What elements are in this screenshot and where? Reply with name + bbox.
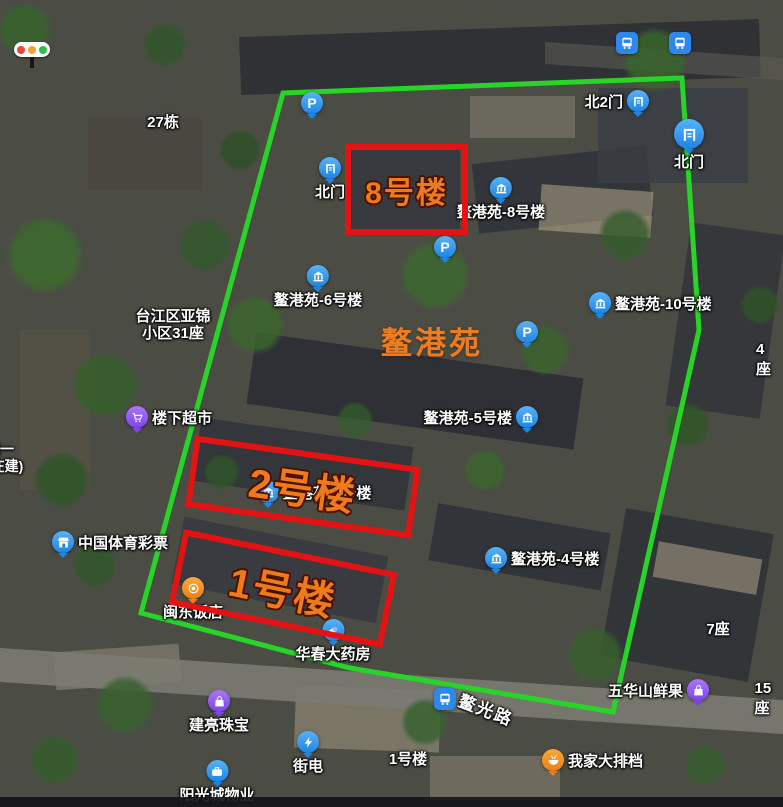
power-bank-icon (297, 731, 319, 753)
gate-icon (319, 157, 341, 179)
compound-name-label: 鳌港苑 (381, 318, 483, 363)
poi-building-8[interactable]: 鳌港苑-8号楼 (457, 177, 545, 222)
bus-stop-icon (616, 32, 638, 54)
parking-marker[interactable]: P (434, 236, 456, 258)
traffic-light-icon (14, 42, 50, 68)
highlight-box-label: 8号楼 (365, 168, 448, 212)
building-icon (490, 177, 512, 199)
building-icon (307, 265, 329, 287)
gate-icon (674, 119, 704, 149)
window-bottom-edge (0, 797, 783, 807)
poi-label: 鳌港苑-8号楼 (457, 201, 545, 222)
parking-marker[interactable]: P (301, 92, 323, 114)
parking-icon: P (301, 92, 323, 114)
poi-label: 中国体育彩票 (78, 532, 168, 553)
poi-label: 北2门 (585, 91, 623, 112)
highlight-box-label: 1号楼 (224, 549, 342, 627)
poi-fruit-shop[interactable]: 五华山鲜果 (608, 679, 709, 701)
map-label-line1: 台江区亚锦 (135, 308, 210, 325)
poi-label: 五华山鲜果 (608, 680, 683, 701)
building-icon (516, 406, 538, 428)
poi-label: 北门 (315, 181, 345, 202)
parking-icon: P (434, 236, 456, 258)
poi-north-gate-west[interactable]: 北门 (315, 157, 345, 202)
poi-lottery-store[interactable]: 中国体育彩票 (52, 531, 168, 553)
poi-label: 华春大药房 (295, 643, 370, 664)
map-label-line1: 线一 (0, 441, 23, 458)
lottery-store-icon (52, 531, 74, 553)
food-stall-icon (542, 749, 564, 771)
satellite-map[interactable]: 8号楼 2号楼 1号楼 鳌港苑 北2门 北门 P 北门 鳌港苑-8号楼 P (0, 0, 783, 807)
poi-label: 楼下超市 (152, 407, 212, 428)
building-icon (485, 547, 507, 569)
highlight-box-label: 2号楼 (245, 451, 360, 524)
map-label-block4: 4座 (756, 341, 774, 379)
parking-marker[interactable]: P (516, 321, 538, 343)
building-icon (589, 292, 611, 314)
map-label-block15: 15座 (755, 680, 774, 718)
poi-label: 鳌港苑-6号楼 (274, 289, 362, 310)
poi-building-5[interactable]: 鳌港苑-5号楼 (424, 406, 538, 428)
poi-label: 鳌港苑-10号楼 (615, 293, 712, 314)
parking-icon: P (516, 321, 538, 343)
map-label-under-construction: 线一 (在建) (0, 441, 23, 475)
poi-building-10[interactable]: 鳌港苑-10号楼 (589, 292, 712, 314)
map-label-block27: 27栋 (147, 111, 179, 132)
map-label-line2: 小区31座 (135, 325, 210, 342)
poi-label: 我家大排档 (568, 750, 643, 771)
map-label-yajin-community: 台江区亚锦 小区31座 (135, 308, 210, 342)
poi-jewelry[interactable]: 建亮珠宝 (189, 690, 249, 735)
poi-label: 街电 (293, 755, 323, 776)
bus-stop-icon (434, 688, 456, 710)
bus-stop-icon (669, 32, 691, 54)
property-office-icon (206, 760, 228, 782)
poi-label: 建亮珠宝 (189, 714, 249, 735)
poi-building-6[interactable]: 鳌港苑-6号楼 (274, 265, 362, 310)
highlight-box-building8: 8号楼 (345, 144, 468, 235)
poi-label: 鳌港苑-5号楼 (424, 407, 512, 428)
poi-power-bank[interactable]: 街电 (293, 731, 323, 776)
poi-label: 鳌港苑-4号楼 (511, 548, 599, 569)
poi-north-gate[interactable]: 北门 (674, 119, 704, 172)
supermarket-cart-icon (126, 406, 148, 428)
map-label-building1-road: 1号楼 (389, 748, 427, 769)
poi-north-gate-2[interactable]: 北2门 (585, 90, 649, 112)
gate-icon (627, 90, 649, 112)
bus-stop-marker[interactable] (669, 32, 691, 54)
jewelry-bag-icon (208, 690, 230, 712)
poi-label: 北门 (674, 151, 704, 172)
poi-supermarket[interactable]: 楼下超市 (126, 406, 212, 428)
poi-road-bus-stop[interactable]: 鳌光路 (434, 686, 517, 711)
map-label-block7: 7座 (706, 618, 729, 639)
poi-building-4[interactable]: 鳌港苑-4号楼 (485, 547, 599, 569)
poi-food-stall[interactable]: 我家大排档 (542, 749, 643, 771)
map-label-line2: (在建) (0, 458, 23, 475)
fruit-shop-bag-icon (687, 679, 709, 701)
bus-stop-marker[interactable] (616, 32, 638, 54)
